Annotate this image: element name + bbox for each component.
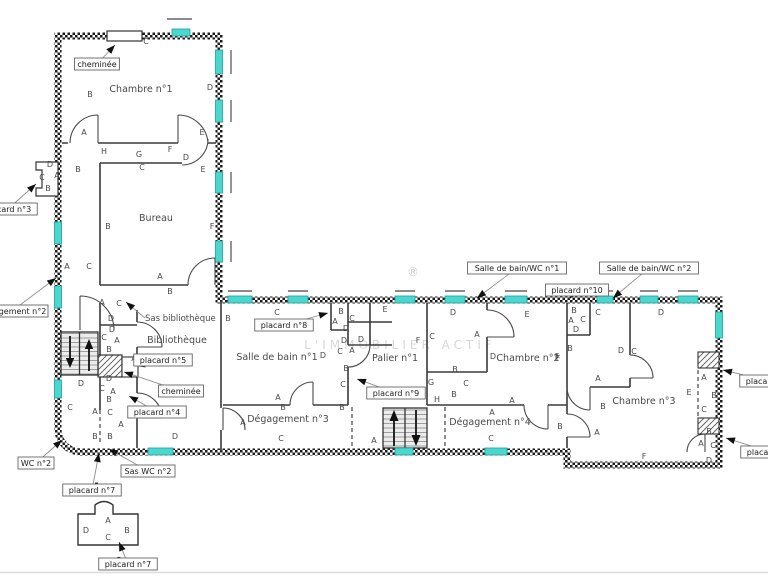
window — [640, 296, 658, 303]
window — [288, 296, 308, 303]
dimension-letter: C — [337, 347, 343, 356]
dimension-letter: B — [600, 402, 606, 411]
callout: WC n°2 — [18, 440, 62, 469]
window — [216, 241, 223, 262]
dimension-letter: B — [452, 365, 458, 374]
dimension-letter: C — [101, 333, 107, 342]
closet-hatch-upper — [698, 352, 719, 368]
callout-text: placard n°7 — [69, 486, 115, 495]
dimension-letter: E — [200, 165, 205, 174]
callout: Dégagement n°2 — [0, 278, 56, 317]
dimension-letter: B — [571, 306, 577, 315]
callout-text: placard n°8 — [261, 321, 307, 330]
dimension-letter: C — [39, 173, 45, 182]
dimension-letter: B — [105, 222, 111, 231]
dimension-letter: D — [341, 336, 347, 345]
dimension-letter: A — [54, 171, 60, 180]
window — [395, 296, 415, 303]
dimension-letter: F — [168, 145, 173, 154]
dimension-letter: C — [429, 332, 435, 341]
callout-text: placard n°4 — [134, 408, 180, 417]
window — [55, 222, 62, 244]
window — [505, 296, 527, 303]
dimension-letter: B — [567, 344, 573, 353]
callout: Salle de bain/WC n°2 — [600, 262, 699, 298]
callout-arrowhead — [318, 312, 328, 319]
dimension-letter: H — [101, 147, 107, 156]
dimension-letter: A — [332, 317, 338, 326]
dimension-letter: G — [136, 150, 142, 159]
window — [216, 172, 223, 193]
floor-plan-page: ® L'IMMOBILIER ACTIF BCD — [0, 0, 768, 576]
callout-arrowhead — [129, 396, 139, 403]
callout-text: Salle de bain/WC n°2 — [607, 264, 692, 273]
callout-text: Salle de bain/WC n°1 — [475, 264, 560, 273]
dimension-letter: A — [371, 436, 377, 445]
room-label: Bibliothèque — [147, 335, 207, 346]
dimension-letter: D — [358, 335, 364, 344]
dimension-letter: C — [99, 384, 105, 393]
dimension-letter: D — [183, 153, 189, 162]
window — [55, 380, 62, 398]
dimension-letter: B — [280, 403, 286, 412]
callout-text: cheminée — [77, 59, 116, 69]
dimension-letter: D — [47, 160, 53, 169]
dimension-letter: A — [92, 407, 98, 416]
dimension-letter: D — [78, 379, 84, 388]
window — [216, 100, 223, 122]
dimension-letter: A — [64, 262, 70, 271]
callout-text: placard n°10 — [551, 286, 603, 295]
callout-text: Sas bibliothèque — [145, 313, 216, 324]
callout: placard n°7 — [63, 453, 122, 496]
dimension-letter: A — [114, 336, 120, 345]
dimension-letter: D — [109, 325, 115, 334]
dimension-letter: D — [706, 456, 712, 465]
dimension-letter: G — [428, 378, 434, 387]
dimension-letter: D — [658, 308, 664, 317]
dimension-letter: C — [105, 533, 111, 542]
callout-text: WC n°2 — [21, 459, 51, 468]
dimension-letter: D — [450, 308, 456, 317]
dimension-letter: C — [107, 408, 113, 417]
callout: placard n°8 — [255, 312, 328, 331]
dimension-letter: B — [451, 390, 457, 399]
dimension-letter: A — [701, 373, 707, 382]
callout-text: placard n°3 — [0, 205, 31, 214]
room-label: Chambre n°1 — [109, 84, 172, 95]
dimension-letter: B — [106, 395, 112, 404]
dimension-letter: B — [225, 314, 231, 323]
dimension-letter: A — [240, 418, 246, 427]
dimension-letter: B — [339, 403, 345, 412]
room-label: Dégagement n°3 — [247, 414, 329, 425]
callout-text: placard n°5 — [140, 356, 186, 365]
dimension-letter: C — [86, 262, 92, 271]
staircase-main — [383, 408, 427, 448]
room-label: Chambre n°3 — [612, 396, 675, 407]
callout: placard n°7 — [99, 542, 158, 570]
dimension-letter: A — [105, 516, 111, 525]
dimension-letter: D — [207, 83, 213, 92]
dimension-letter: A — [489, 408, 495, 417]
callout-arrowhead — [726, 437, 736, 443]
window — [216, 50, 223, 74]
dimension-letter: B — [343, 364, 349, 373]
room-label: Palier n°1 — [372, 353, 418, 364]
floor-plan-drawing: ® L'IMMOBILIER ACTIF BCD — [0, 0, 768, 576]
watermark-symbol: ® — [407, 265, 419, 279]
dimension-letter: A — [594, 428, 600, 437]
callout: placard n°4 — [128, 396, 187, 418]
dimension-letter: C — [139, 163, 145, 172]
dimension-letter: E — [686, 388, 691, 397]
chimney-top — [107, 31, 142, 41]
dimension-letter: B — [557, 422, 563, 431]
window — [716, 312, 723, 338]
dimension-letter: A — [157, 272, 163, 281]
dimension-letter: A — [99, 298, 105, 307]
dimension-letter: E — [199, 128, 204, 137]
dimension-letter: D — [343, 324, 349, 333]
window — [445, 296, 465, 303]
callout-text: cheminée — [161, 386, 200, 396]
callout: placard n°2 — [726, 437, 768, 458]
dimension-letter: A — [509, 396, 515, 405]
dimension-letter: A — [474, 330, 480, 339]
callout-arrowhead — [126, 302, 135, 310]
callout: placard n°5 — [134, 354, 193, 367]
callout-text: placard n°2 — [747, 448, 768, 457]
dimension-letter: B — [338, 307, 344, 316]
room-label: Chambre n°2 — [496, 353, 559, 364]
dimension-letter: D — [83, 526, 89, 535]
dimension-letter: C — [143, 37, 149, 46]
callout: placard n°1 — [723, 369, 768, 387]
room-label: Bureau — [139, 213, 173, 224]
dimension-letter: H — [434, 395, 440, 404]
dimension-letter: A — [349, 346, 355, 355]
door-arcs — [70, 115, 705, 452]
dimension-letter: F — [210, 222, 215, 231]
callout-arrowhead — [357, 379, 367, 385]
callout-text: placard n°1 — [746, 377, 768, 386]
window — [597, 296, 613, 303]
dimension-letter: C — [631, 347, 637, 356]
dimension-letter: D — [320, 351, 326, 360]
dimension-letter: C — [278, 434, 284, 443]
dimension-letter: D — [490, 352, 496, 361]
dimension-letter: F — [642, 452, 647, 461]
dimension-letter: D — [108, 314, 114, 323]
dimension-letter: B — [92, 432, 98, 441]
dimension-letter: E — [382, 305, 387, 314]
dimension-letter: A — [568, 316, 574, 325]
room-label: Salle de bain n°1 — [236, 352, 317, 363]
callout: placard n°3 — [0, 184, 37, 215]
dimension-letter: C — [488, 434, 494, 443]
dimension-letter: B — [107, 432, 113, 441]
dimension-letter: D — [618, 346, 624, 355]
callout-text: placard n°7 — [105, 560, 151, 569]
window — [148, 448, 173, 455]
dimension-letter: A — [118, 420, 124, 429]
staircase-junction — [61, 332, 98, 375]
dimension-letter: C — [67, 403, 73, 412]
dimension-letter: D — [573, 325, 579, 334]
dimension-letter: A — [81, 128, 87, 137]
window — [228, 296, 252, 303]
dimension-letter: B — [87, 90, 93, 99]
callout-arrowhead — [723, 369, 733, 376]
dimension-letter: C — [116, 299, 122, 308]
dimension-letter: A — [275, 393, 281, 402]
callout-text: Sas WC n°2 — [125, 467, 172, 476]
dimension-letter: C — [710, 441, 716, 450]
dimension-letter: C — [463, 379, 469, 388]
dimension-letter: F — [416, 336, 421, 345]
dimension-letter: B — [167, 287, 173, 296]
dimension-letter: B — [75, 165, 81, 174]
dimension-letter: C — [595, 308, 601, 317]
callout: Sas bibliothèque — [126, 302, 216, 324]
watermark-text: L'IMMOBILIER ACTIF — [304, 338, 496, 352]
dimension-letter: C — [340, 380, 346, 389]
window — [395, 448, 413, 455]
window — [172, 29, 190, 36]
dimension-letter: A — [595, 374, 601, 383]
dimension-letter: B — [106, 345, 112, 354]
callout: cheminée — [75, 45, 120, 70]
window — [55, 286, 62, 308]
dimension-letter: E — [524, 310, 529, 319]
dimension-letter: D — [172, 432, 178, 441]
dimension-letter: B — [711, 391, 717, 400]
dimension-letter: C — [701, 405, 707, 414]
dimension-letter: B — [45, 184, 51, 193]
window — [678, 296, 698, 303]
dimension-letter: D — [106, 374, 112, 383]
dimension-letter: C — [349, 314, 355, 323]
dimension-letter: C — [580, 315, 586, 324]
dimension-letter: B — [706, 427, 712, 436]
callout-text: placard n°9 — [373, 389, 419, 398]
dimension-letter: C — [274, 308, 280, 317]
room-label: Dégagement n°4 — [449, 417, 531, 428]
callout-text: Dégagement n°2 — [0, 306, 46, 316]
window — [485, 448, 507, 455]
dimension-letter: A — [698, 439, 704, 448]
callout: placard n°9 — [357, 379, 425, 399]
dimension-letter: B — [124, 526, 130, 535]
